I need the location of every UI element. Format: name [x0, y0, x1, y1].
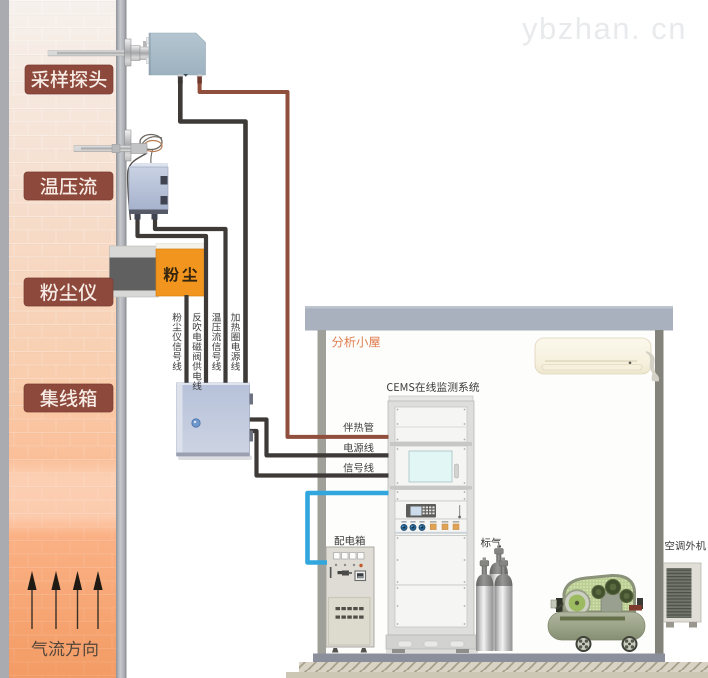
svg-text:ybzhan. cn: ybzhan. cn	[522, 11, 687, 46]
